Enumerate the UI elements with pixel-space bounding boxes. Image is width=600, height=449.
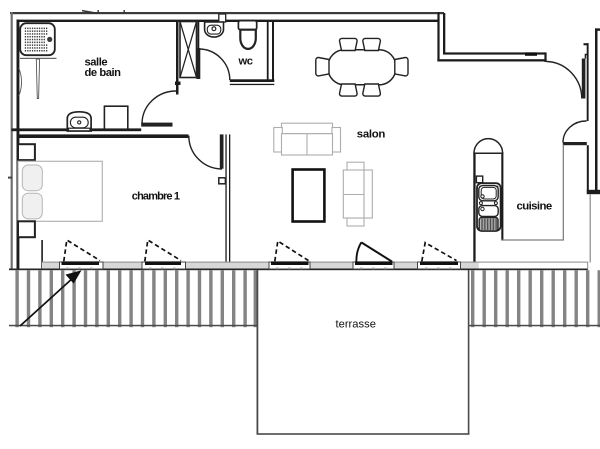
svg-text:cuisine: cuisine: [517, 201, 552, 213]
svg-text:chambre 1: chambre 1: [132, 190, 180, 202]
svg-text:wc: wc: [238, 56, 253, 68]
svg-text:terrasse: terrasse: [336, 319, 376, 331]
svg-text:salon: salon: [357, 129, 386, 141]
svg-text:de bain: de bain: [85, 67, 122, 79]
